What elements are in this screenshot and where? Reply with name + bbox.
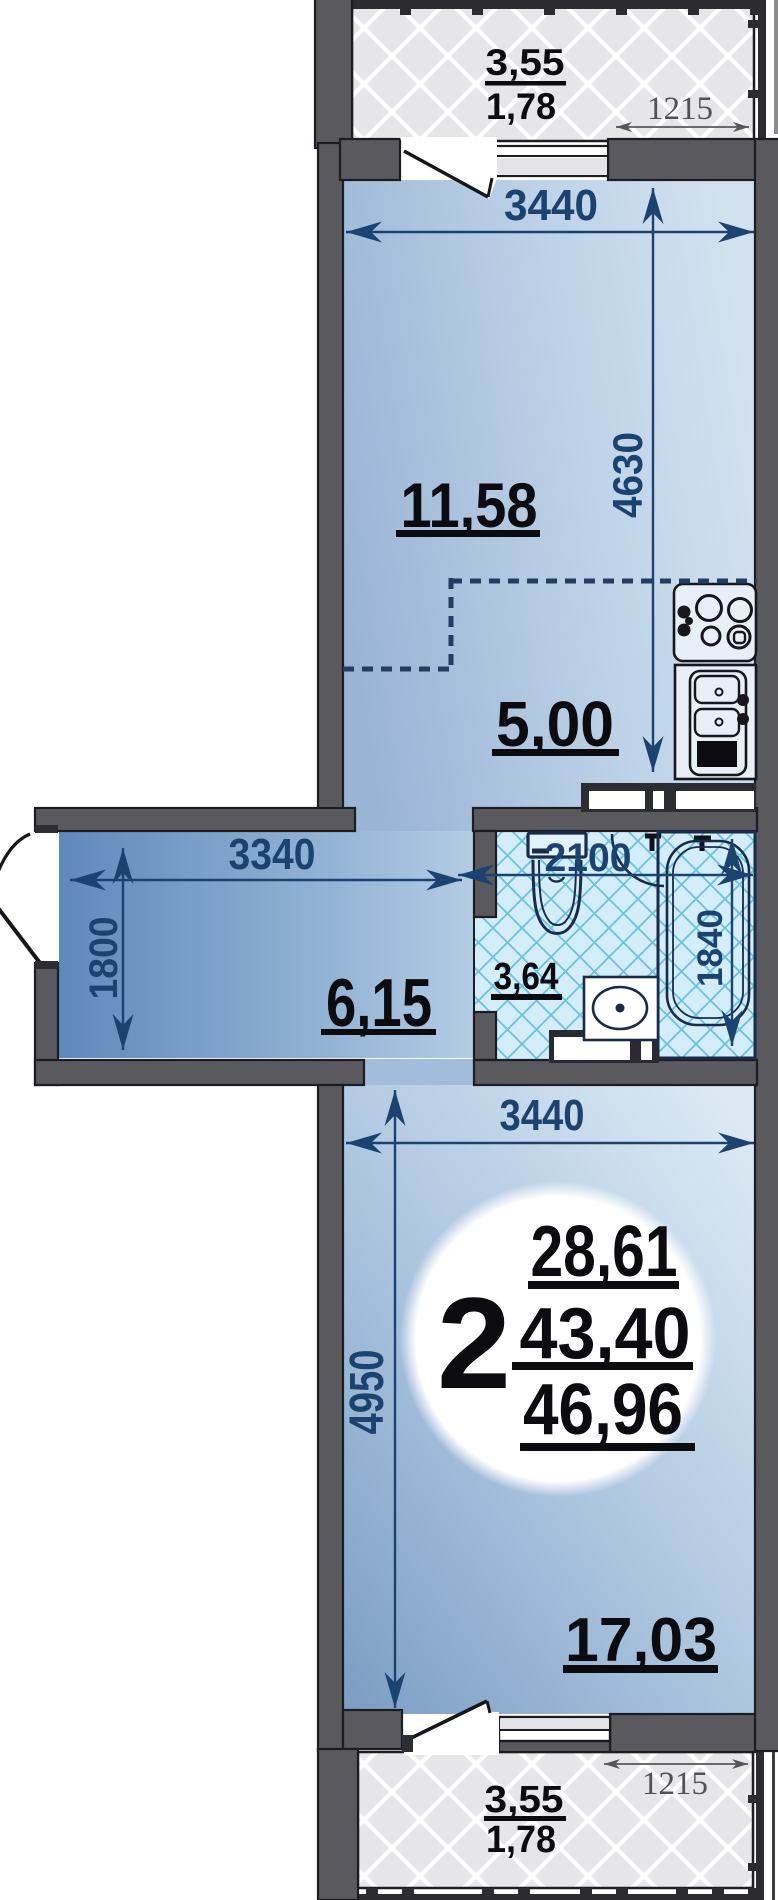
svg-text:1800: 1800 bbox=[82, 917, 126, 1000]
svg-text:2100: 2100 bbox=[545, 836, 632, 880]
svg-text:2: 2 bbox=[437, 1270, 511, 1416]
svg-text:3440: 3440 bbox=[504, 181, 598, 230]
svg-text:1,78: 1,78 bbox=[486, 86, 556, 127]
svg-text:4630: 4630 bbox=[604, 432, 651, 518]
svg-text:3,55: 3,55 bbox=[486, 42, 565, 83]
svg-text:1840: 1840 bbox=[691, 909, 730, 987]
svg-text:1215: 1215 bbox=[647, 91, 713, 127]
svg-text:3,64: 3,64 bbox=[494, 956, 559, 998]
svg-text:3,55: 3,55 bbox=[485, 1779, 564, 1821]
svg-text:1215: 1215 bbox=[642, 1766, 708, 1802]
svg-text:3440: 3440 bbox=[500, 1091, 585, 1140]
svg-text:3340: 3340 bbox=[229, 830, 316, 879]
svg-text:46,96: 46,96 bbox=[523, 1370, 683, 1450]
svg-text:1,78: 1,78 bbox=[486, 1819, 556, 1861]
svg-text:28,61: 28,61 bbox=[531, 1212, 678, 1292]
svg-text:17,03: 17,03 bbox=[565, 1606, 717, 1675]
svg-text:4950: 4950 bbox=[341, 1350, 394, 1435]
